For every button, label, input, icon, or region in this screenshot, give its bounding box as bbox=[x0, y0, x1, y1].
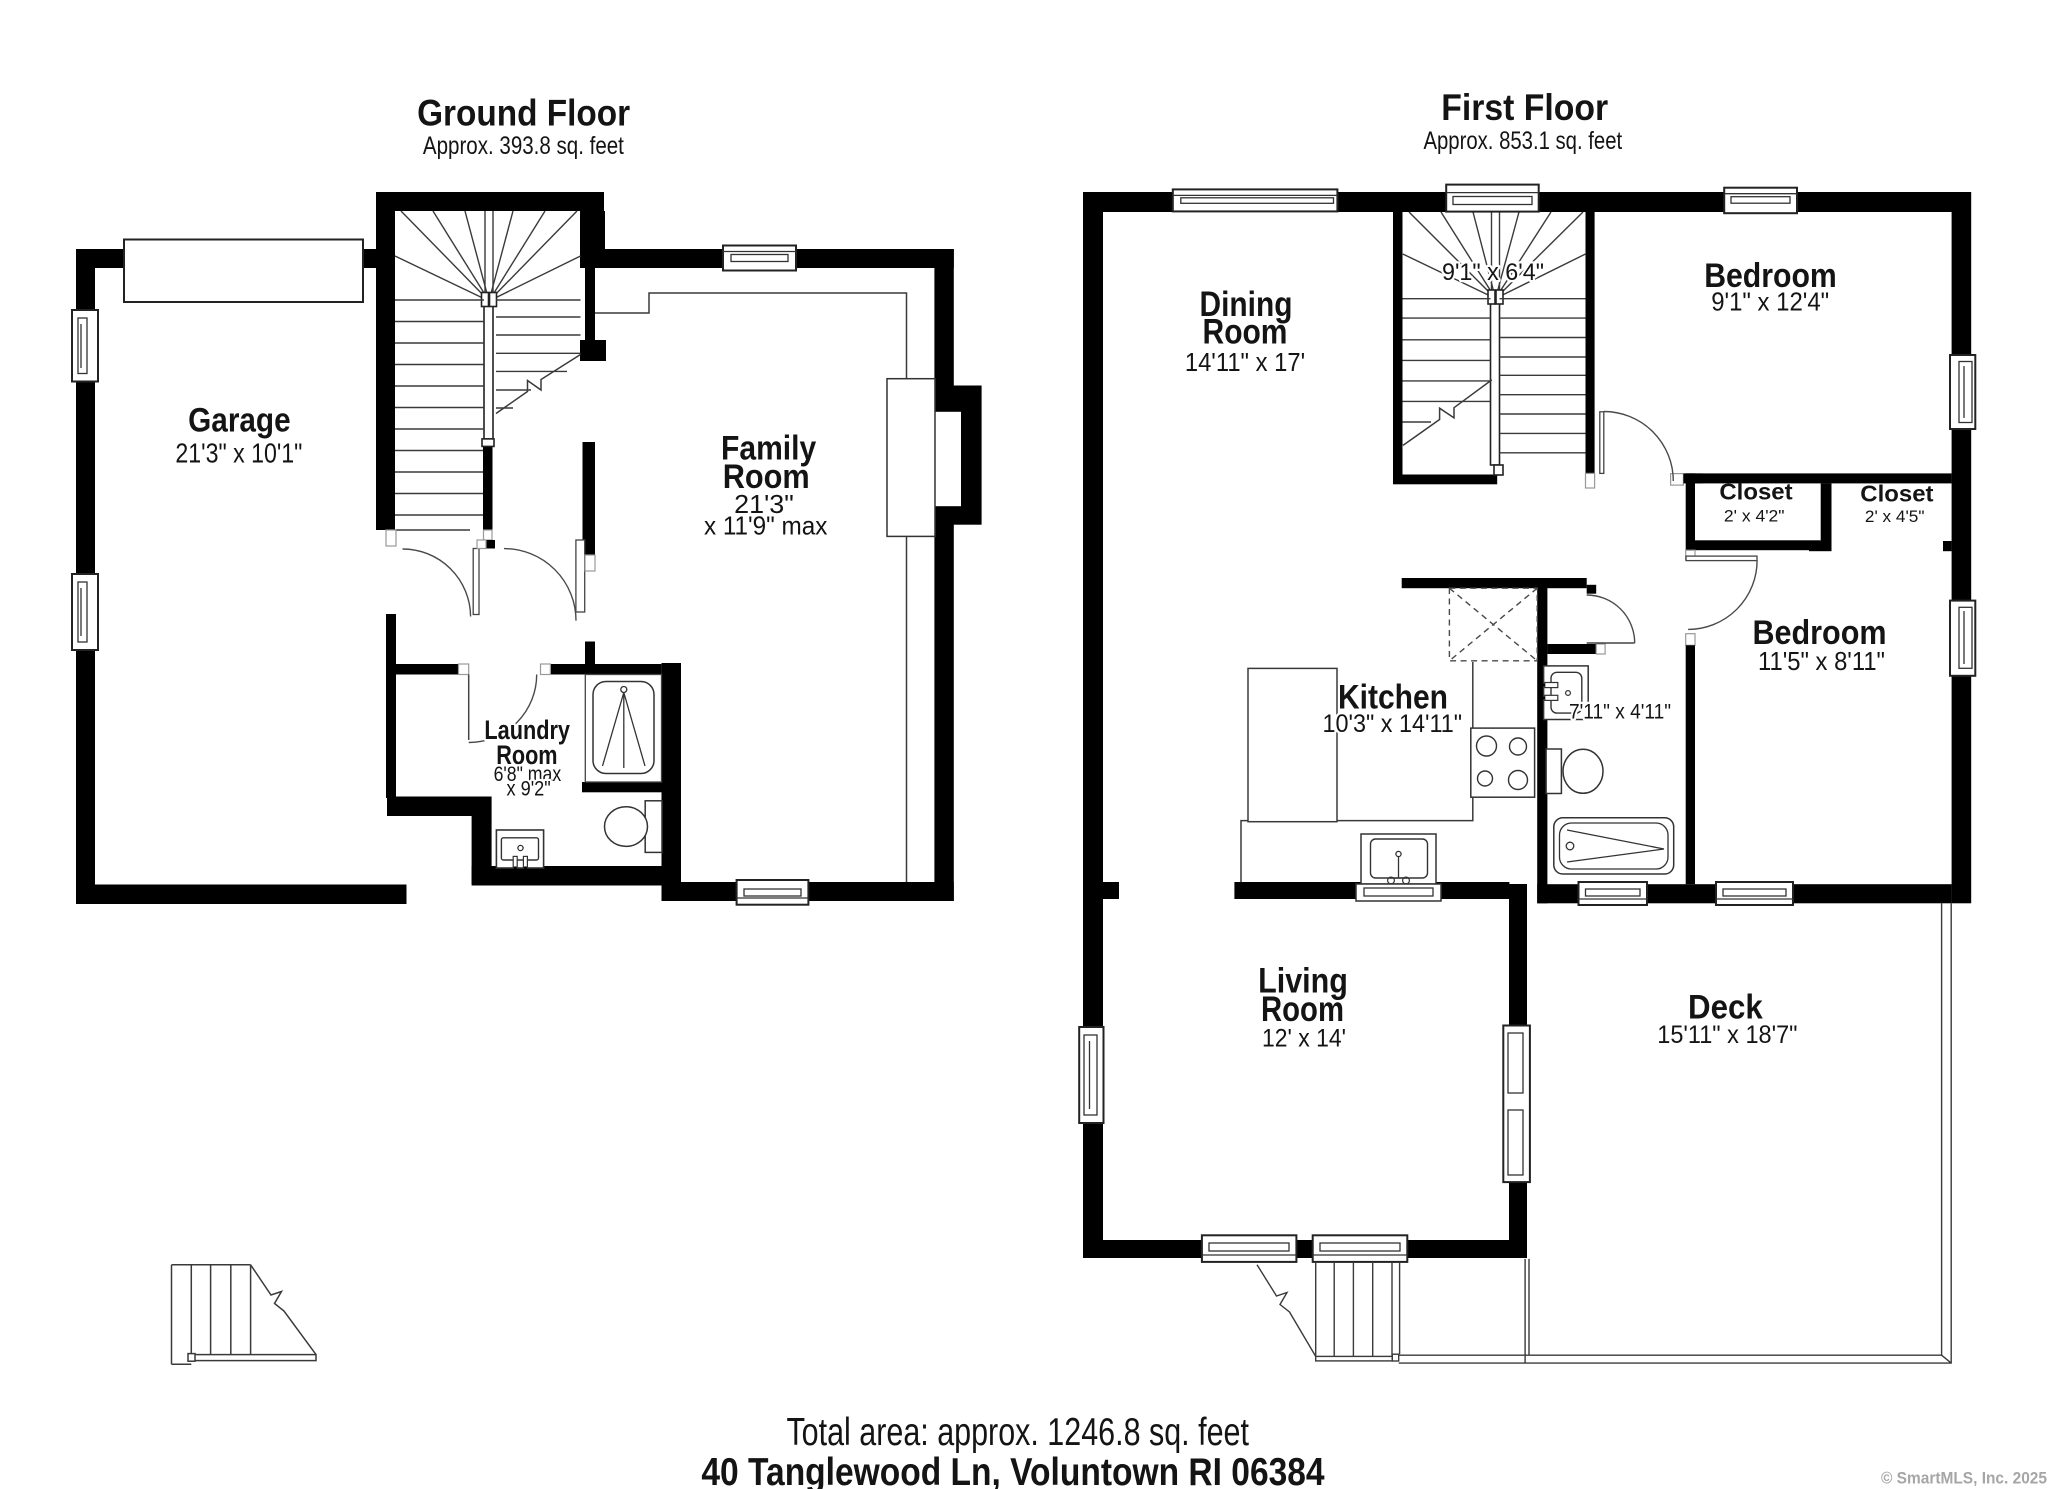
svg-text:Total area: approx. 1246.8 sq.: Total area: approx. 1246.8 sq. feet bbox=[786, 1411, 1249, 1454]
svg-text:Garage: Garage bbox=[188, 402, 291, 440]
svg-text:21'3" x 10'1": 21'3" x 10'1" bbox=[175, 437, 302, 468]
svg-text:12' x 14': 12' x 14' bbox=[1262, 1024, 1346, 1052]
svg-text:10'3" x 14'11": 10'3" x 14'11" bbox=[1323, 710, 1463, 738]
svg-text:Ground Floor: Ground Floor bbox=[417, 93, 630, 134]
svg-text:© SmartMLS, Inc. 2025: © SmartMLS, Inc. 2025 bbox=[1881, 1470, 2047, 1488]
svg-text:7'11" x 4'11": 7'11" x 4'11" bbox=[1569, 701, 1671, 724]
svg-text:Approx. 393.8 sq. feet: Approx. 393.8 sq. feet bbox=[423, 132, 624, 160]
svg-text:Approx. 853.1 sq. feet: Approx. 853.1 sq. feet bbox=[1423, 127, 1622, 155]
svg-text:15'11" x 18'7": 15'11" x 18'7" bbox=[1657, 1021, 1797, 1049]
svg-text:9'1" x 6'4": 9'1" x 6'4" bbox=[1442, 259, 1544, 286]
svg-text:First Floor: First Floor bbox=[1441, 87, 1608, 128]
svg-text:2' x 4'5": 2' x 4'5" bbox=[1865, 507, 1925, 526]
svg-text:x 9'2": x 9'2" bbox=[506, 777, 550, 800]
svg-text:14'11" x 17': 14'11" x 17' bbox=[1185, 349, 1305, 377]
svg-text:2' x 4'2": 2' x 4'2" bbox=[1724, 506, 1785, 525]
svg-text:Closet: Closet bbox=[1719, 479, 1793, 505]
svg-text:Closet: Closet bbox=[1860, 480, 1934, 506]
svg-text:Room: Room bbox=[1261, 990, 1344, 1029]
svg-text:11'5" x 8'11": 11'5" x 8'11" bbox=[1758, 646, 1885, 676]
svg-text:9'1" x 12'4": 9'1" x 12'4" bbox=[1711, 287, 1829, 317]
svg-text:x 11'9" max: x 11'9" max bbox=[704, 510, 828, 540]
svg-text:Room: Room bbox=[1203, 312, 1288, 351]
svg-text:40 Tanglewood Ln, Voluntown RI: 40 Tanglewood Ln, Voluntown RI 06384 bbox=[701, 1451, 1324, 1489]
